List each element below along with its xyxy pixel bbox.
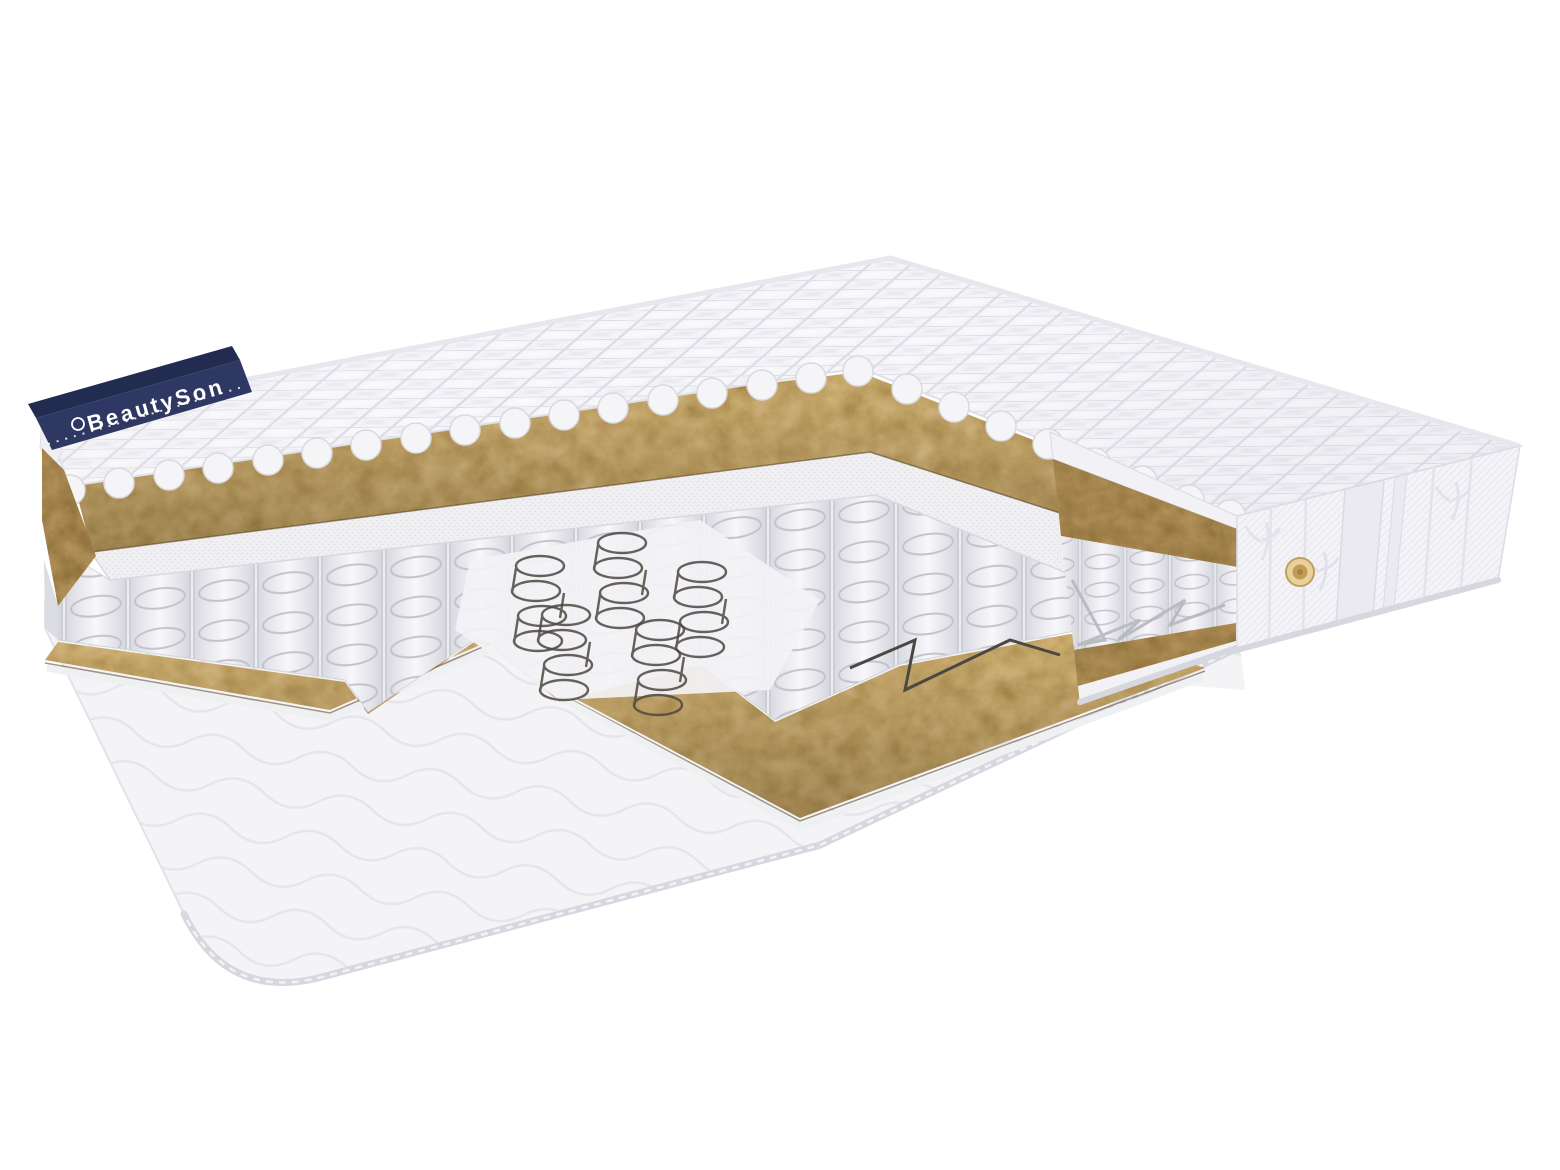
air-vent-icon [1286, 558, 1314, 586]
mattress-cutaway-image: BeautySon [0, 0, 1560, 1170]
mattress-cutaway-photo: BeautySon [0, 0, 1560, 1170]
